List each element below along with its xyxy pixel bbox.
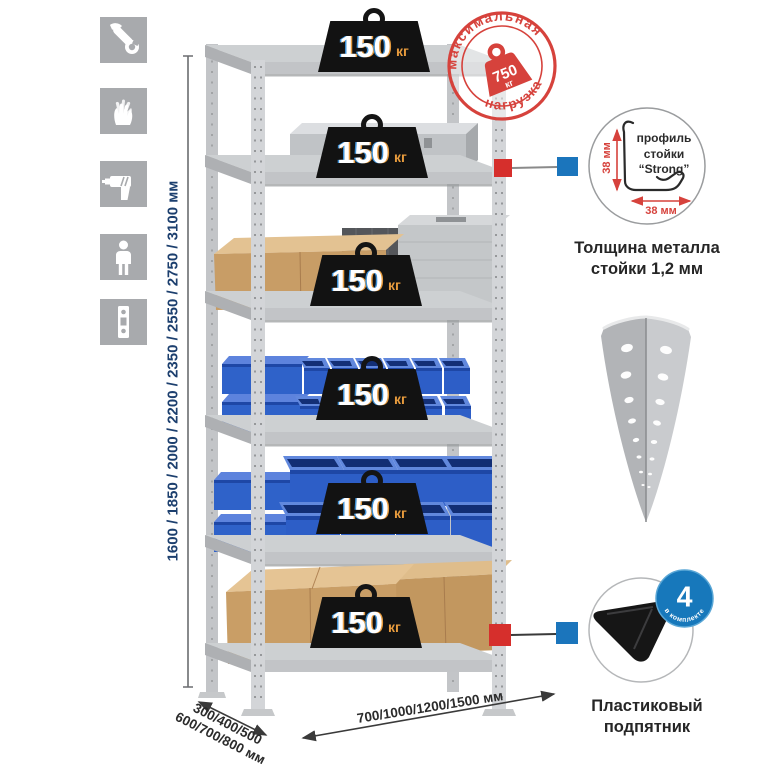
badge-count: 4 xyxy=(677,581,693,613)
rack-front-left-post xyxy=(251,60,265,709)
profile-label-line2: стойки xyxy=(631,147,697,163)
profile-label: профиль стойки “Strong” xyxy=(631,131,697,178)
weight-unit: кг xyxy=(394,149,407,165)
profile-label-line3: “Strong” xyxy=(631,162,697,178)
profile-caption: Толщина металла стойки 1,2 мм xyxy=(547,238,747,279)
rack-back-left-post xyxy=(206,44,218,692)
weight-badge-shelf-5: 150кг xyxy=(316,470,428,534)
weight-value: 150 xyxy=(331,265,383,296)
wrench-icon xyxy=(100,17,147,63)
connector-blue-square-top xyxy=(557,157,578,176)
profile-caption-line1: Толщина металла xyxy=(547,238,747,259)
foot-caption: Пластиковый подпятник xyxy=(547,696,747,737)
weight-value: 150 xyxy=(331,607,383,638)
weight-value: 150 xyxy=(337,379,389,410)
weight-value: 150 xyxy=(339,31,391,62)
weight-badge-shelf-6: 150кг xyxy=(310,584,422,648)
person-icon xyxy=(100,234,147,280)
gloves-icon xyxy=(100,88,147,134)
foot-caption-line1: Пластиковый xyxy=(547,696,747,717)
connector-red-square-bottom xyxy=(489,624,511,646)
rack-front-right-post xyxy=(492,60,506,709)
weight-badge-shelf-3: 150кг xyxy=(310,242,422,306)
profile-dim-horizontal: 38 мм xyxy=(645,205,677,217)
weight-unit: кг xyxy=(394,391,407,407)
product-infographic: максимальная нагрузка 750 кг xyxy=(0,0,765,765)
weight-value: 150 xyxy=(337,493,389,524)
profile-dim-vertical: 38 мм xyxy=(601,142,613,174)
kit-count-badge: 4 в комплекте xyxy=(655,569,714,628)
weight-value: 150 xyxy=(337,137,389,168)
connector-red-square-top xyxy=(494,159,512,177)
weight-unit: кг xyxy=(388,277,401,293)
profile-label-line1: профиль xyxy=(631,131,697,147)
corner-post-picture xyxy=(601,317,691,522)
rack-foot-plate xyxy=(198,692,226,698)
weight-badge-shelf-1: 150кг xyxy=(318,8,430,72)
weight-badge-shelf-2: 150кг xyxy=(316,114,428,178)
shelf-post-icon xyxy=(100,299,147,345)
connector-blue-square-bottom xyxy=(556,622,578,644)
rack-foot-plate xyxy=(241,709,275,716)
shelf-5 xyxy=(205,535,506,567)
drill-icon xyxy=(100,161,147,207)
weight-unit: кг xyxy=(396,43,409,59)
weight-badge-shelf-4: 150кг xyxy=(316,356,428,420)
height-dimension-label: 1600 / 1850 / 2000 / 2200 / 2350 / 2550 … xyxy=(165,181,182,562)
profile-caption-line2: стойки 1,2 мм xyxy=(547,259,747,280)
weight-unit: кг xyxy=(388,619,401,635)
foot-caption-line2: подпятник xyxy=(547,717,747,738)
weight-unit: кг xyxy=(394,505,407,521)
rack-foot-plate xyxy=(482,709,516,716)
